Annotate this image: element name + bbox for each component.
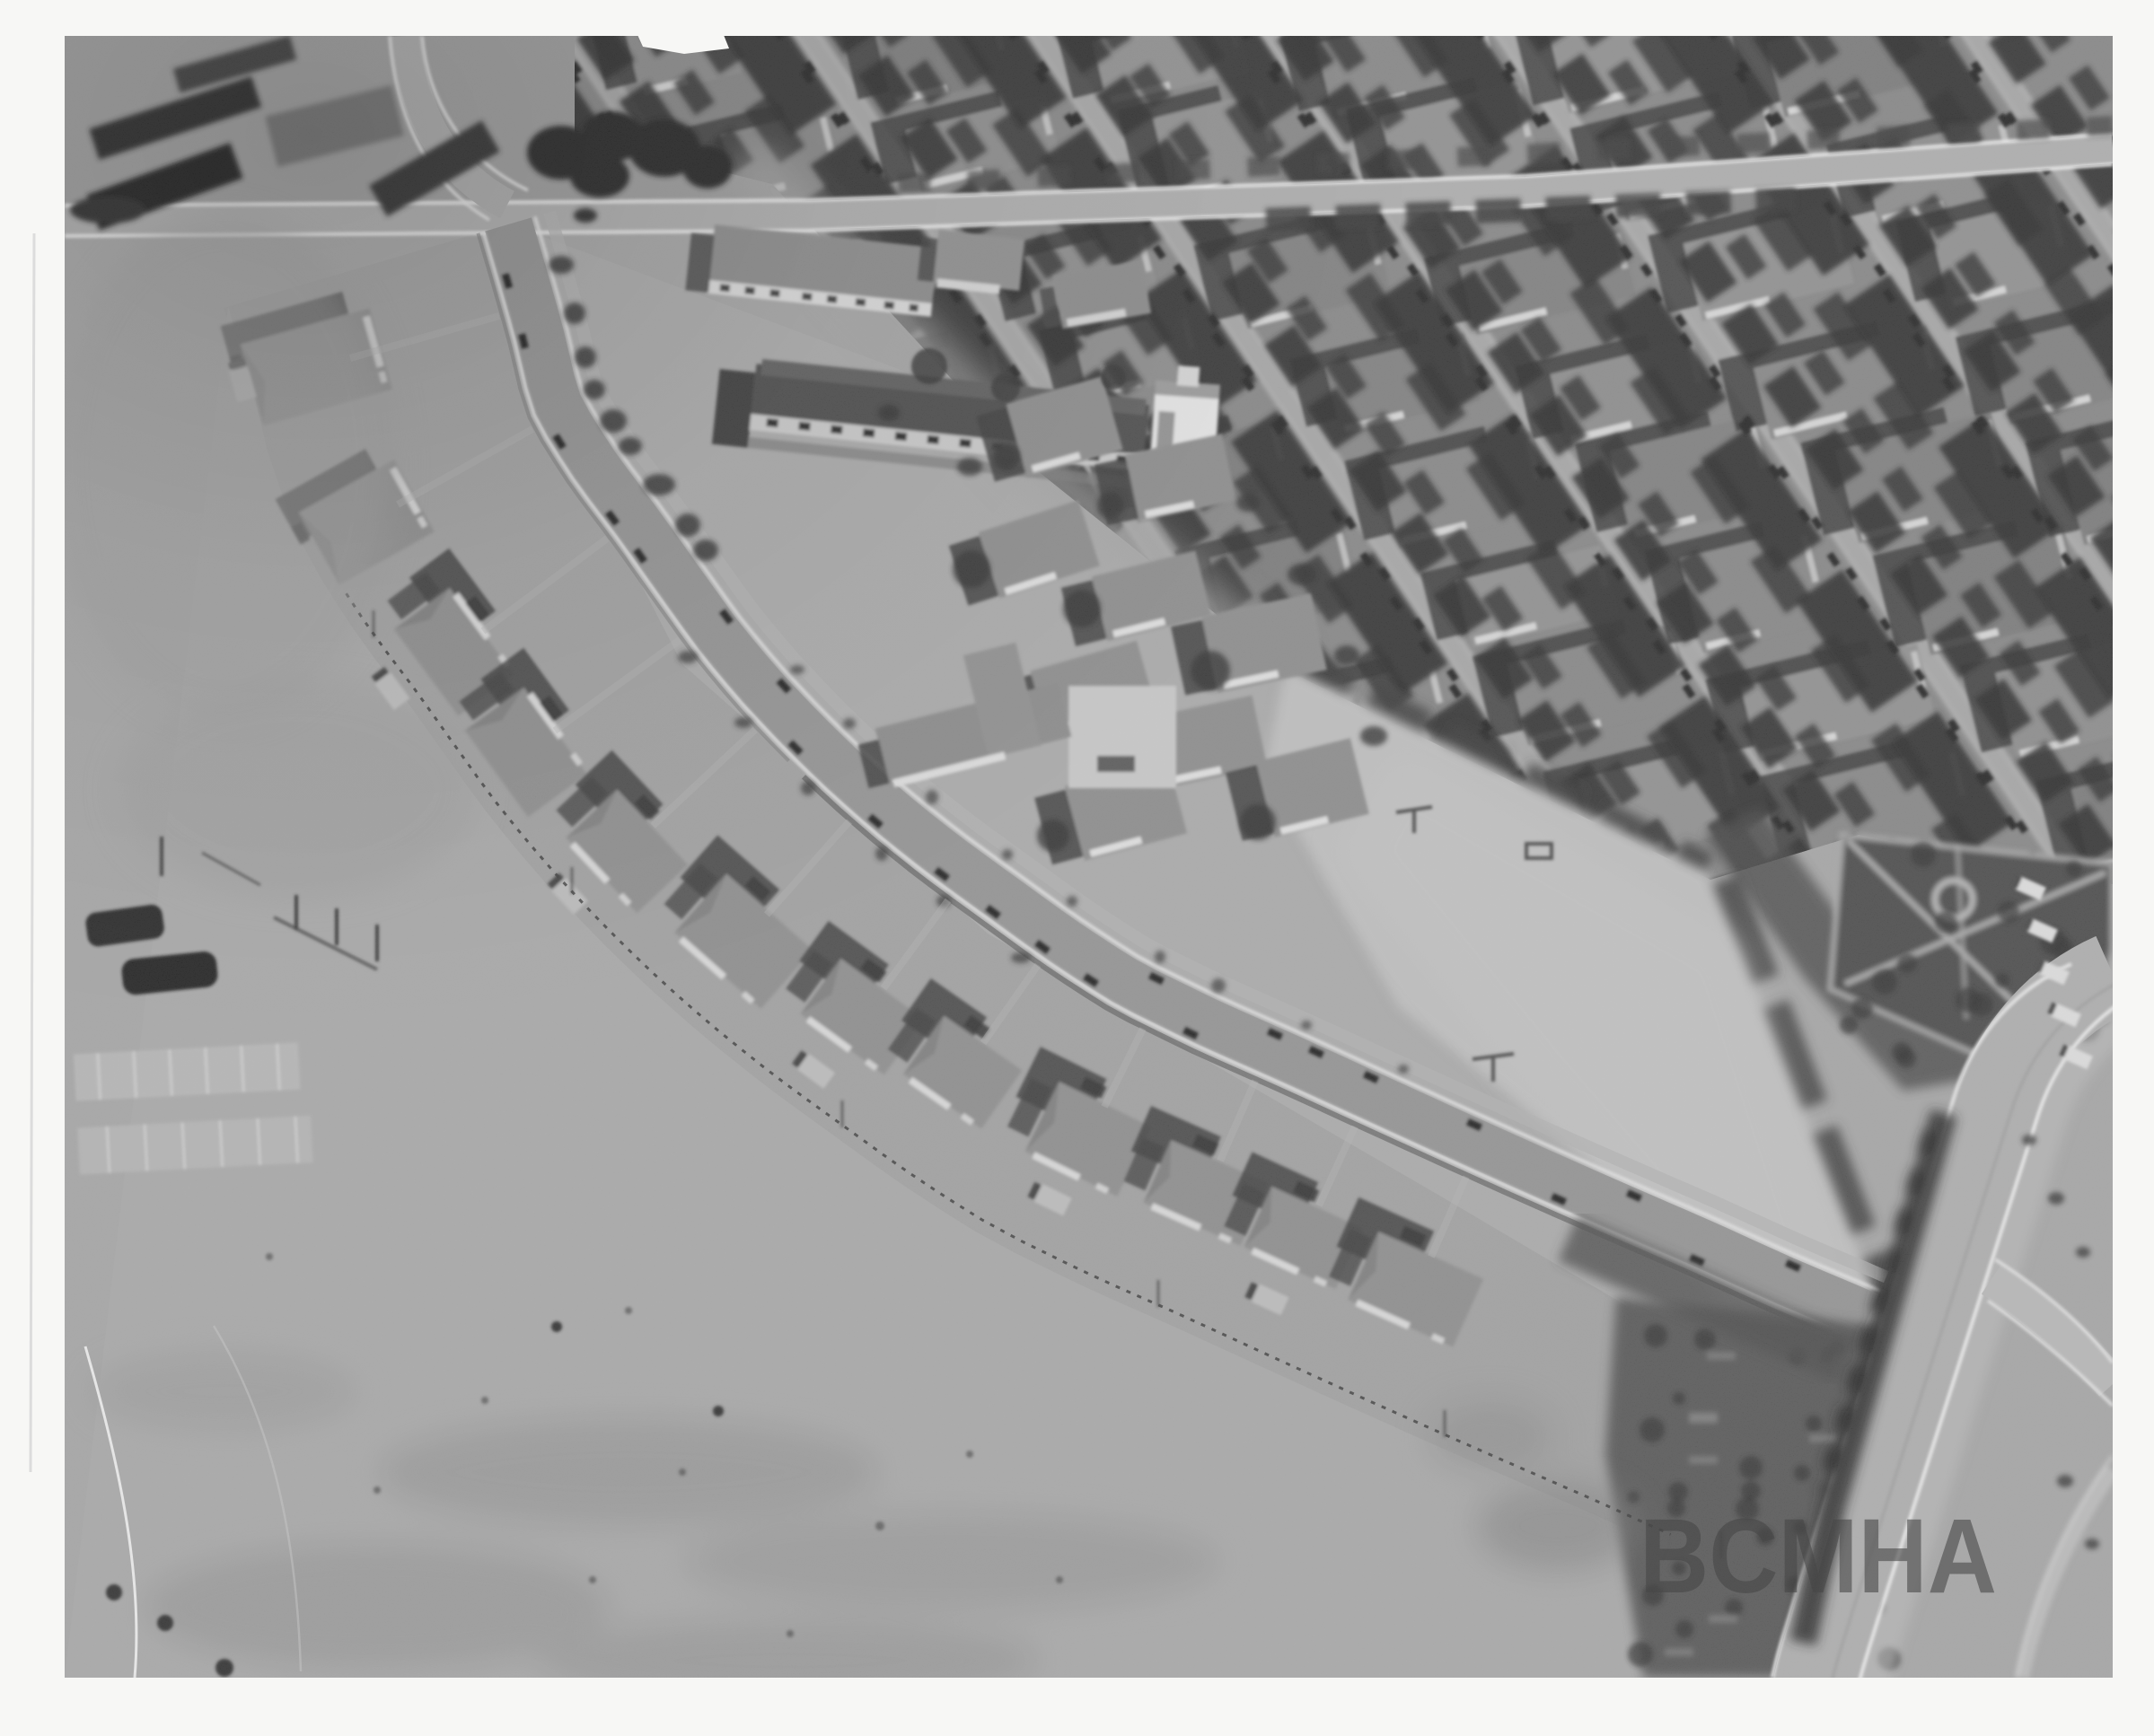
- svg-text:BCMHA: BCMHA: [1640, 1497, 1997, 1616]
